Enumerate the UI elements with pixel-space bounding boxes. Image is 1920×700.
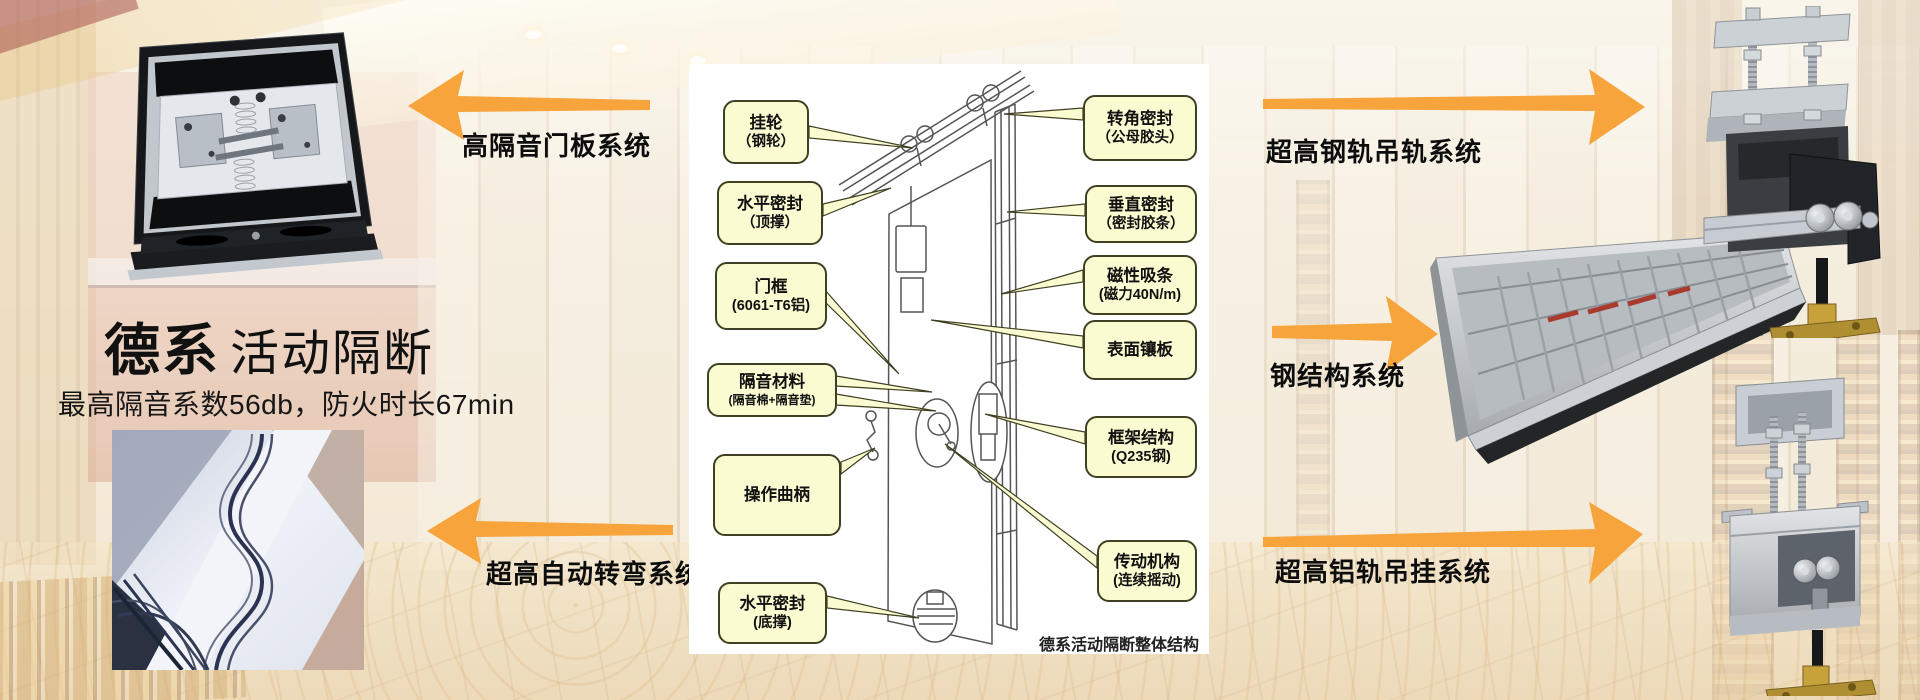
callout-text: 垂直密封 [1108, 195, 1174, 216]
callout-text: (隔音棉+隔音垫) [728, 393, 815, 408]
callout-text: (Q235钢) [1111, 448, 1171, 466]
system-label-auto-turning: 超高自动转弯系统 [486, 554, 702, 591]
callout-surface-panel: 表面镶板 [1083, 320, 1197, 380]
callout-horizontal-seal-bottom: 水平密封 (底撑) [718, 582, 827, 644]
page-title: 德系活动隔断 [104, 306, 434, 387]
product-name-text: 活动隔断 [230, 327, 434, 381]
callout-text: 操作曲柄 [744, 485, 810, 506]
callout-text: （顶撑） [741, 214, 799, 232]
callout-frame-structure: 框架结构 (Q235钢) [1085, 416, 1197, 478]
callout-hanging-wheel: 挂轮 （钢轮） [723, 100, 809, 164]
photo-curve-track-render [112, 430, 364, 670]
callout-text: (磁力40N/m) [1099, 286, 1181, 304]
callout-magnetic-strip: 磁性吸条 (磁力40N/m) [1083, 255, 1197, 315]
callout-text: 挂轮 [750, 113, 783, 134]
callout-sound-insulation-material: 隔音材料 (隔音棉+隔音垫) [707, 363, 837, 417]
callout-text: 水平密封 [740, 594, 806, 615]
slide-canvas: 德系活动隔断 最高隔音系数56db，防火时长67min 高隔音门板系统 [0, 0, 1920, 700]
system-label-steel-structure: 钢结构系统 [1270, 356, 1405, 393]
diagram-caption: 德系活动隔断整体结构 [1039, 631, 1209, 655]
callout-text: 磁性吸条 [1107, 266, 1173, 287]
callout-text: 框架结构 [1108, 428, 1174, 449]
callout-text: 隔音材料 [739, 372, 805, 393]
brand-text: 德系 [104, 319, 220, 382]
callout-text: （钢轮） [737, 133, 795, 151]
callout-text: (连续摇动) [1113, 572, 1181, 590]
callout-text: (底撑) [753, 614, 792, 632]
trolley-wheels [901, 85, 999, 166]
system-label-aluminum-rail: 超高铝轨吊挂系统 [1275, 552, 1491, 589]
callout-text: （密封胶条） [1098, 215, 1185, 233]
callout-transmission-mechanism: 传动机构 (连续摇动) [1097, 540, 1197, 602]
system-label-steel-rail: 超高钢轨吊轨系统 [1266, 132, 1482, 169]
callout-horizontal-seal-top: 水平密封 （顶撑） [717, 181, 823, 245]
callout-text: 门框 [755, 277, 788, 298]
system-label-door-panel: 高隔音门板系统 [462, 126, 651, 163]
callout-text: 水平密封 [737, 194, 803, 215]
photo-door-panel-module [112, 28, 384, 296]
diagram-panel: 挂轮 （钢轮） 水平密封 （顶撑） 门框 (6061-T6铝) 隔音材料 (隔音… [689, 64, 1209, 654]
callout-text: （公母胶头） [1097, 129, 1184, 147]
photo-steel-rail-hanger [1698, 6, 1913, 338]
callout-text: 表面镶板 [1107, 340, 1173, 361]
bottom-seal-drawing [913, 590, 957, 642]
callout-text: 转角密封 [1107, 109, 1173, 130]
subtitle-specs: 最高隔音系数56db，防火时长67min [58, 383, 515, 423]
callout-text: (6061-T6铝) [732, 297, 810, 315]
photo-aluminum-rail-hanger [1700, 376, 1915, 696]
callout-vertical-seal: 垂直密封 （密封胶条） [1085, 185, 1197, 243]
callout-corner-seal: 转角密封 （公母胶头） [1083, 95, 1197, 161]
callout-door-frame: 门框 (6061-T6铝) [715, 262, 827, 330]
door-drawing [839, 71, 1034, 644]
callout-text: 传动机构 [1114, 552, 1180, 573]
callout-operating-crank: 操作曲柄 [713, 454, 841, 536]
panel-edge-strip [995, 104, 1017, 630]
